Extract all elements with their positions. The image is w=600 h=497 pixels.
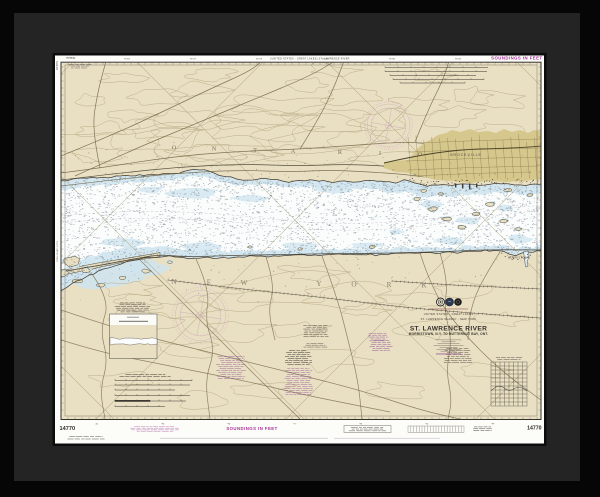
svg-text:14770: 14770 [60, 426, 76, 432]
svg-text:MORRISTOWN, N.Y. TO BUTTERNUT: MORRISTOWN, N.Y. TO BUTTERNUT BAY, ONT. [409, 332, 488, 336]
svg-text:O: O [418, 151, 423, 158]
svg-text:I: I [379, 150, 381, 157]
svg-text:75°18′: 75°18′ [124, 59, 131, 61]
svg-text:ST. LAWRENCE SEAWAY - NEW YORK: ST. LAWRENCE SEAWAY - NEW YORK [421, 317, 477, 321]
svg-text:75°27′: 75°27′ [190, 59, 197, 61]
svg-text:T: T [253, 147, 257, 154]
svg-text:14770: 14770 [527, 426, 542, 432]
svg-text:N: N [171, 278, 177, 286]
svg-text:A: A [291, 148, 296, 155]
svg-text:75°37′: 75°37′ [256, 59, 263, 61]
svg-text:R: R [387, 281, 392, 289]
svg-text:SOUNDINGS IN FEET: SOUNDINGS IN FEET [491, 56, 542, 61]
svg-text:O: O [351, 281, 356, 289]
svg-text:75°46′: 75°46′ [322, 59, 329, 61]
svg-text:JOINS CHART 14771: JOINS CHART 14771 [56, 240, 59, 262]
svg-text:W: W [241, 279, 248, 287]
svg-text:N: N [212, 146, 217, 153]
svg-text:75°05′: 75°05′ [455, 59, 462, 61]
svg-text:UNITED STATES - GREAT LAKES: UNITED STATES - GREAT LAKES [424, 312, 474, 316]
svg-text:O: O [172, 145, 177, 152]
svg-text:MORRISTOWN: MORRISTOWN [508, 256, 530, 260]
svg-text:75°55′W: 75°55′W [66, 57, 76, 60]
svg-text:Y: Y [316, 280, 322, 288]
svg-text:75°56′: 75°56′ [389, 59, 396, 61]
svg-text:44°35′N: 44°35′N [55, 61, 59, 70]
svg-text:SOUNDINGS IN FEET: SOUNDINGS IN FEET [226, 426, 277, 431]
svg-text:(UNITED STATES - GREAT LAKES): (UNITED STATES - GREAT LAKES) ST. LAWREN… [270, 57, 349, 60]
svg-text:K: K [421, 282, 427, 290]
svg-text:BROCKVILLE: BROCKVILLE [450, 153, 482, 157]
svg-text:E: E [207, 279, 212, 287]
